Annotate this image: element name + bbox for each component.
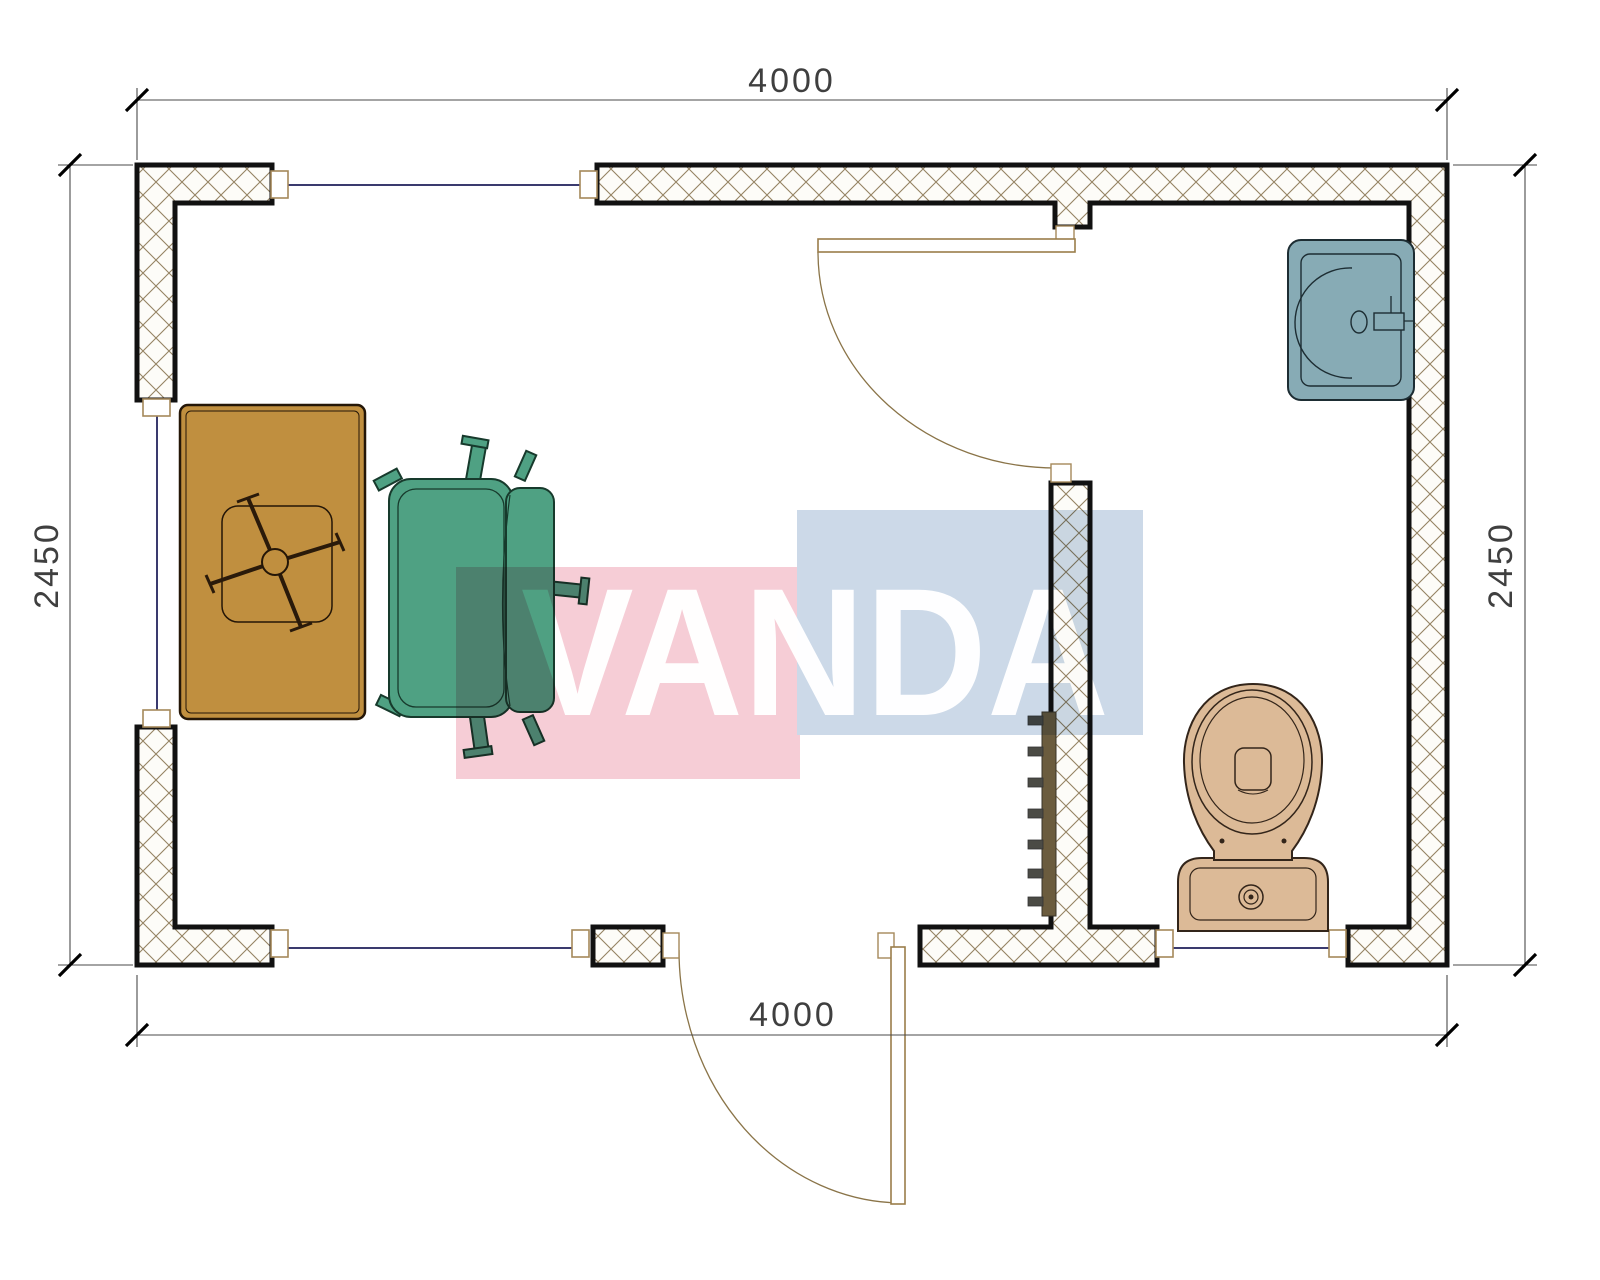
exterior-door [663, 933, 905, 1204]
dimension-label-right: 2450 [1482, 521, 1520, 609]
window-frame [143, 399, 170, 416]
wall-top-left [137, 165, 272, 400]
toilet-flush-button-dot [1249, 895, 1254, 900]
window-frame [1329, 930, 1346, 957]
window-bottom-right [1156, 930, 1346, 957]
toilet [1178, 684, 1328, 931]
radiator-body [1042, 712, 1056, 916]
wall-pier [593, 927, 663, 965]
window-frame [572, 930, 589, 957]
toilet-bolt [1220, 839, 1225, 844]
chair-backrest [506, 488, 554, 712]
radiator [1028, 712, 1056, 916]
dimension-label-left: 2450 [28, 521, 66, 609]
window-frame [1156, 930, 1173, 957]
door-swing-arc [818, 252, 1056, 468]
interior-door [818, 226, 1075, 482]
desk-star-hub [262, 549, 288, 575]
door-leaf [891, 947, 905, 1204]
door-leaf [818, 239, 1075, 252]
dimension-label-top: 4000 [748, 62, 836, 100]
window-frame [580, 171, 597, 198]
wall-bottom-left [137, 727, 272, 965]
window-bottom-left [271, 930, 589, 957]
window-frame [271, 930, 288, 957]
floor-plan-canvas: 4000 4000 2450 2450 VANDA [0, 0, 1600, 1280]
door-swing-arc [679, 950, 903, 1203]
dimension-label-bottom: 4000 [749, 996, 837, 1034]
door-frame [663, 933, 679, 958]
window-top [271, 171, 597, 198]
door-frame [1051, 464, 1071, 482]
desk [180, 405, 365, 719]
radiator-tabs [1028, 716, 1043, 906]
office-chair [374, 436, 590, 758]
dimension-left [58, 154, 133, 976]
floor-plan-drawing: 4000 4000 2450 2450 [0, 0, 1600, 1280]
dimension-lines [58, 165, 133, 965]
chair-seat [389, 479, 513, 717]
sink-faucet [1374, 313, 1404, 330]
sink [1288, 240, 1414, 400]
toilet-bolt [1282, 839, 1287, 844]
window-frame [271, 171, 288, 198]
window-frame [143, 710, 170, 727]
window-left [143, 399, 170, 727]
